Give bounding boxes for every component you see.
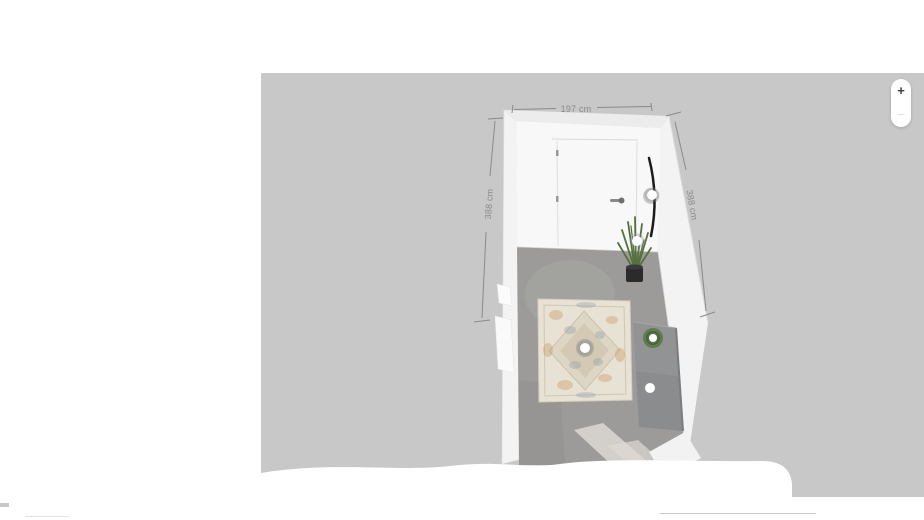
zoom-in-button[interactable]: + <box>893 83 909 99</box>
marker-dot[interactable] <box>647 190 657 200</box>
door-hinge <box>556 150 559 156</box>
corner-artifact <box>0 503 9 507</box>
item-marker-rug[interactable] <box>578 341 593 356</box>
zoom-out-button[interactable]: − <box>893 107 909 123</box>
plant-pot-rim <box>626 265 643 270</box>
item-marker-mirror[interactable] <box>645 188 660 203</box>
marker-dot[interactable] <box>632 236 642 246</box>
dimension-label-left-depth: 388 cm <box>483 188 495 219</box>
left-wall-trim <box>497 284 512 306</box>
sideboard-lower <box>636 372 683 431</box>
door-handle-knob <box>619 198 625 204</box>
zoom-control: + − <box>891 79 911 127</box>
back-wall[interactable] <box>516 121 661 252</box>
left-bottom-artifact <box>25 516 69 517</box>
dimension-label-width: 197 cm <box>561 104 592 114</box>
plant-pot-on-sideboard[interactable] <box>643 328 663 348</box>
marker-dot[interactable] <box>649 334 657 342</box>
marker-dot[interactable] <box>645 383 655 393</box>
bottom-white-overlay <box>261 460 792 520</box>
door-hinge <box>556 196 559 202</box>
bottom-panel-edge <box>660 513 816 514</box>
item-marker-plant[interactable] <box>630 234 645 249</box>
room-scene: 197 cm 388 cm 388 cm <box>0 0 924 520</box>
marker-dot[interactable] <box>580 343 590 353</box>
item-marker-sideboard[interactable] <box>643 381 658 396</box>
left-wall-trim <box>495 316 514 373</box>
